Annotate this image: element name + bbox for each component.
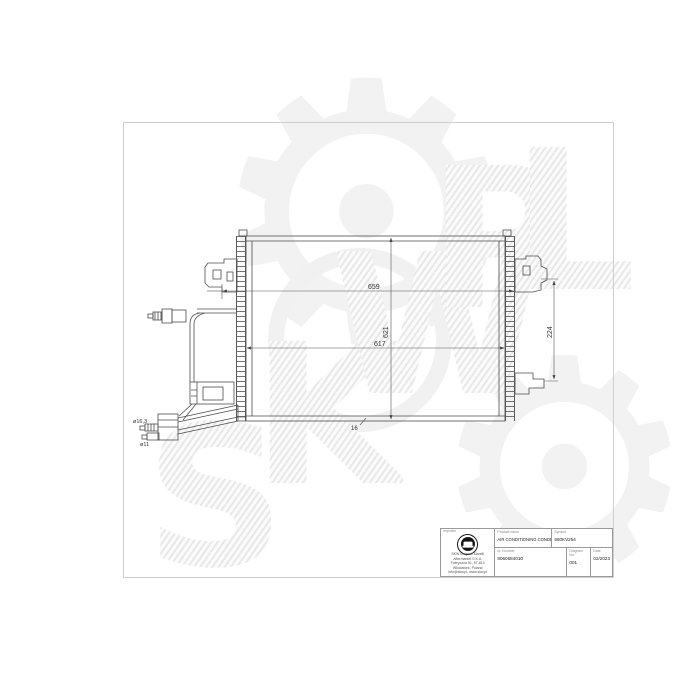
dim-label-port-large: ø16,3 xyxy=(133,419,147,425)
company-line: Fabryczna 51, 87-810 Włocławek, Poland xyxy=(442,561,493,570)
date-label: Date xyxy=(593,549,610,553)
dim-label-617: 617 xyxy=(374,341,386,348)
condenser-core xyxy=(237,230,511,421)
condenser-drawing: 659 617 621 224 16 ø16,3 ø11 xyxy=(0,0,700,700)
mounting-bracket-top-left xyxy=(205,259,237,292)
company-line: info@skw.pl, www.skw.pl xyxy=(442,570,493,575)
diagram-no-label: Diagram No. xyxy=(569,549,588,557)
dim-label-port-small: ø11 xyxy=(140,442,149,448)
pipe-assembly xyxy=(140,309,238,440)
dim-label-659: 659 xyxy=(368,284,380,291)
mounting-bracket-bottom-right xyxy=(515,373,544,394)
company-line: SKW Magneti Marelli Aftermarket S.K.A. xyxy=(442,552,493,561)
company-address: SKW Magneti Marelli Aftermarket S.K.A. F… xyxy=(442,552,493,575)
company-logo-icon xyxy=(461,537,475,551)
title-block: Importer SKW Magneti Marelli Aftermarket… xyxy=(440,528,613,577)
diagram-no-value: 001 xyxy=(569,560,588,565)
symbol-label: Symbol xyxy=(554,530,610,534)
product-name-value: AIR CONDITIONING CONDENSER xyxy=(497,537,549,542)
id-number-value: 8060684010 xyxy=(497,556,564,561)
dim-label-224: 224 xyxy=(547,326,554,338)
title-block-fields: Product name AIR CONDITIONING CONDENSER … xyxy=(495,529,612,576)
field-id-number: Id. Number 8060684010 xyxy=(495,548,566,576)
field-product-name: Product name AIR CONDITIONING CONDENSER xyxy=(495,529,551,547)
field-diagram-no: Diagram No. 001 xyxy=(566,548,590,576)
producer-cell: Importer SKW Magneti Marelli Aftermarket… xyxy=(441,529,495,576)
symbol-value: 860KV254 xyxy=(554,537,610,542)
vehicle-icon xyxy=(463,542,472,546)
mounting-bracket-top-right xyxy=(515,256,547,292)
field-date: Date 02/2023 xyxy=(590,548,612,576)
id-number-label: Id. Number xyxy=(497,549,564,553)
dim-label-621: 621 xyxy=(383,326,390,338)
date-value: 02/2023 xyxy=(593,556,610,561)
field-symbol: Symbol 860KV254 xyxy=(551,529,612,547)
drawing-sheet: ⚙ ⚙ S K W P L xyxy=(0,0,700,700)
product-name-label: Product name xyxy=(497,530,549,534)
dim-label-16: 16 xyxy=(351,426,358,432)
